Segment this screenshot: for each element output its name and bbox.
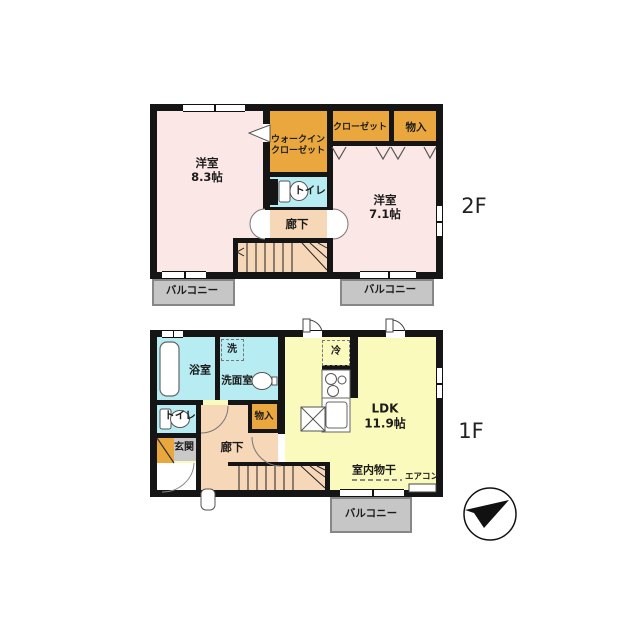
window [360,271,416,279]
label-1f-bathroom: 浴室 [189,363,211,376]
label-1f-balcony: バルコニー [345,508,397,521]
label-1f-aircon: エアコン [405,472,439,482]
label-2f-closet: クローゼット [333,123,387,134]
label-2f-toilet: トイレ [294,185,326,198]
floor-plan-canvas: 洋室8.3帖 ウォークインクローゼット クローゼット 物入 トイレ 廊下 洋室7… [0,0,640,640]
window [162,271,206,279]
label-2f-balcony-right: バルコニー [364,284,416,297]
label-1f-ldk: LDK11.9帖 [364,401,406,430]
window [162,330,183,338]
label-1f-storage: 物入 [254,411,273,423]
floor-label-1f: 1F [458,419,483,443]
label-1f-washer: 洗 [227,344,237,356]
plan-linework [0,0,640,640]
window [436,206,443,236]
label-2f-storage: 物入 [406,122,427,135]
window [303,331,322,338]
label-1f-toilet: トイレ [164,410,196,423]
label-1f-fridge: 冷 [331,346,341,358]
label-2f-east-bedroom: 洋室7.1帖 [369,193,401,221]
window [340,489,404,497]
label-2f-wic: ウォークインクローゼット [271,135,325,157]
label-1f-indoor-drying: 室内物干 [352,463,396,476]
window [386,331,405,338]
label-1f-hallway: 廊下 [221,440,244,454]
label-2f-balcony-left: バルコニー [166,285,218,298]
window [183,104,245,112]
label-2f-west-bedroom: 洋室8.3帖 [191,156,223,184]
window [436,368,443,398]
label-1f-washroom: 洗面室 [221,375,253,388]
label-2f-hallway: 廊下 [286,217,309,231]
label-1f-entrance: 玄関 [174,442,194,454]
floor-label-2f: 2F [461,194,486,218]
compass-icon [464,488,516,540]
